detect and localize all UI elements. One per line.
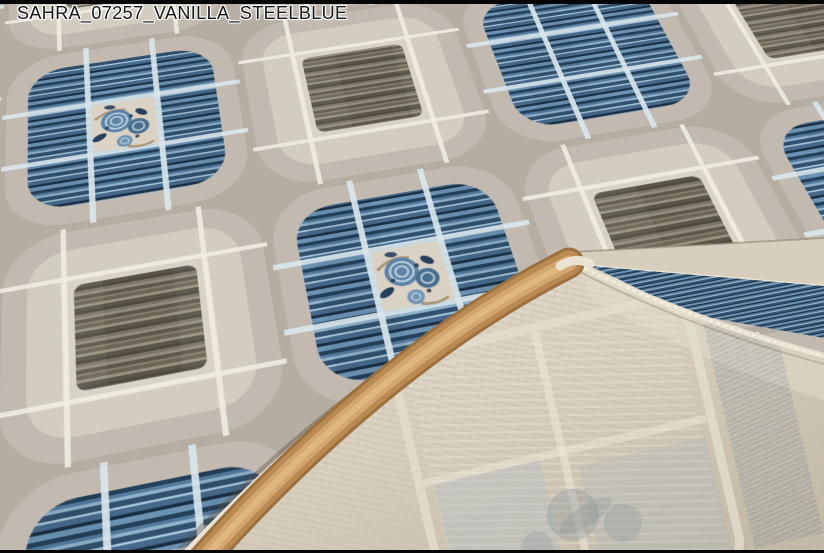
watermark-label: SAHRA_07257_VANILLA_STEELBLUE: [17, 3, 347, 24]
folded-corner-overlay: [0, 0, 824, 553]
photo-viewport: SAHRA_07257_VANILLA_STEELBLUE: [0, 0, 824, 553]
